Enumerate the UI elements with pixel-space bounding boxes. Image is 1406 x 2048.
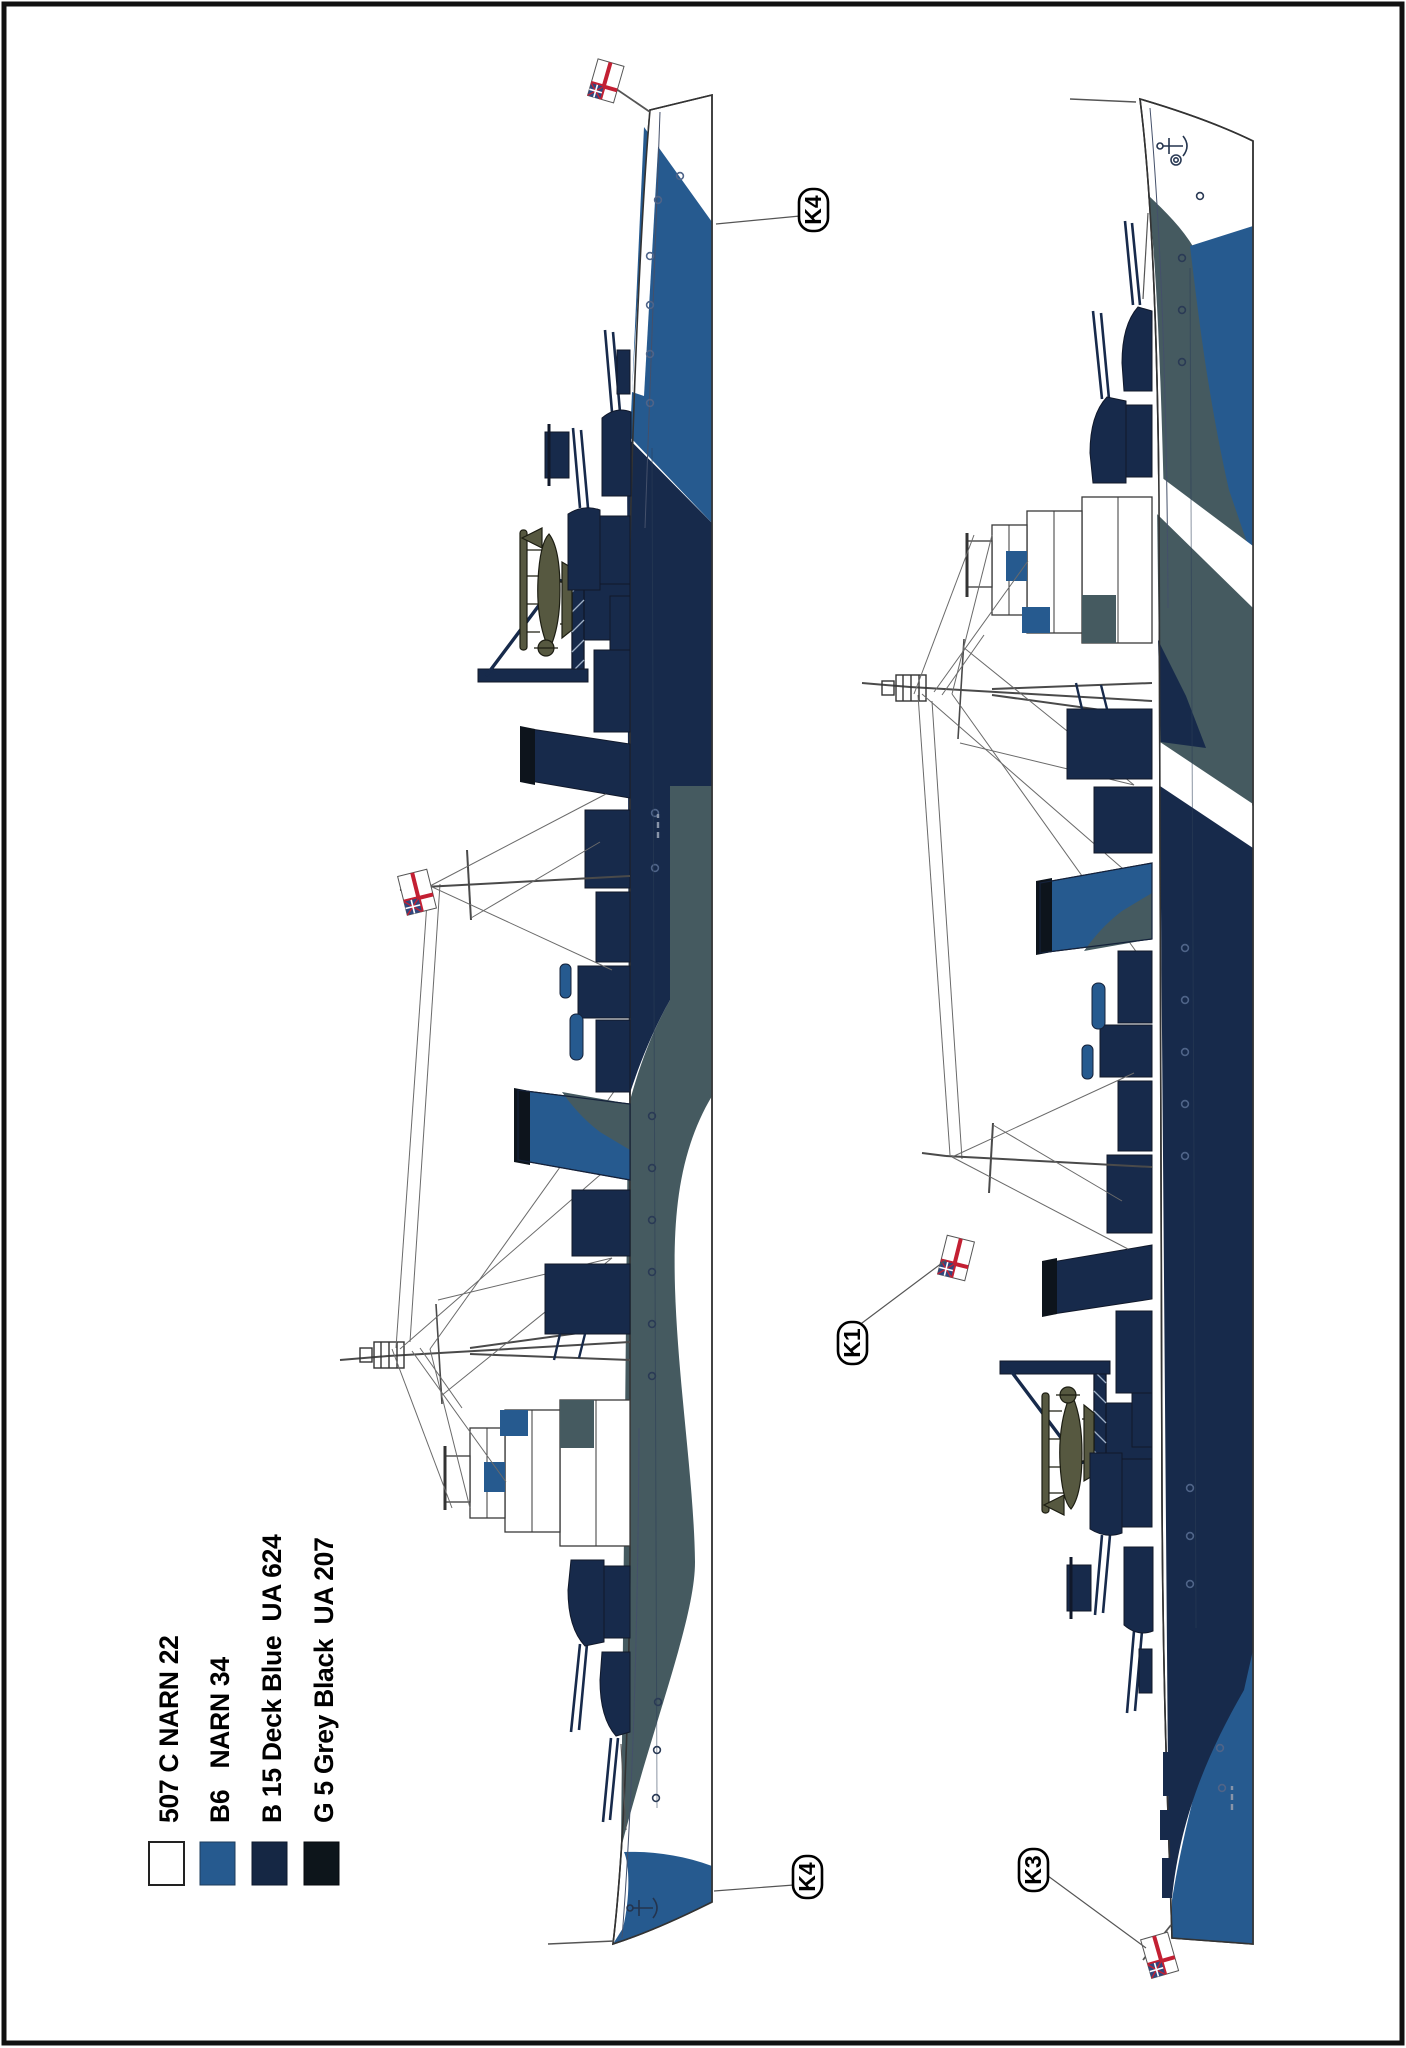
- svg-text:B6 NARN 34: B6 NARN 34: [205, 1657, 235, 1823]
- svg-text:K1: K1: [839, 1328, 865, 1358]
- svg-text:K4: K4: [800, 195, 826, 225]
- svg-text:B 15 Deck Blue UA 624: B 15 Deck Blue UA 624: [257, 1534, 287, 1823]
- svg-text:G 5 Grey Black UA 207: G 5 Grey Black UA 207: [309, 1537, 339, 1823]
- svg-text:K3: K3: [1020, 1855, 1046, 1884]
- svg-text:K4: K4: [794, 1862, 820, 1892]
- svg-text:507 C NARN 22: 507 C NARN 22: [154, 1635, 184, 1823]
